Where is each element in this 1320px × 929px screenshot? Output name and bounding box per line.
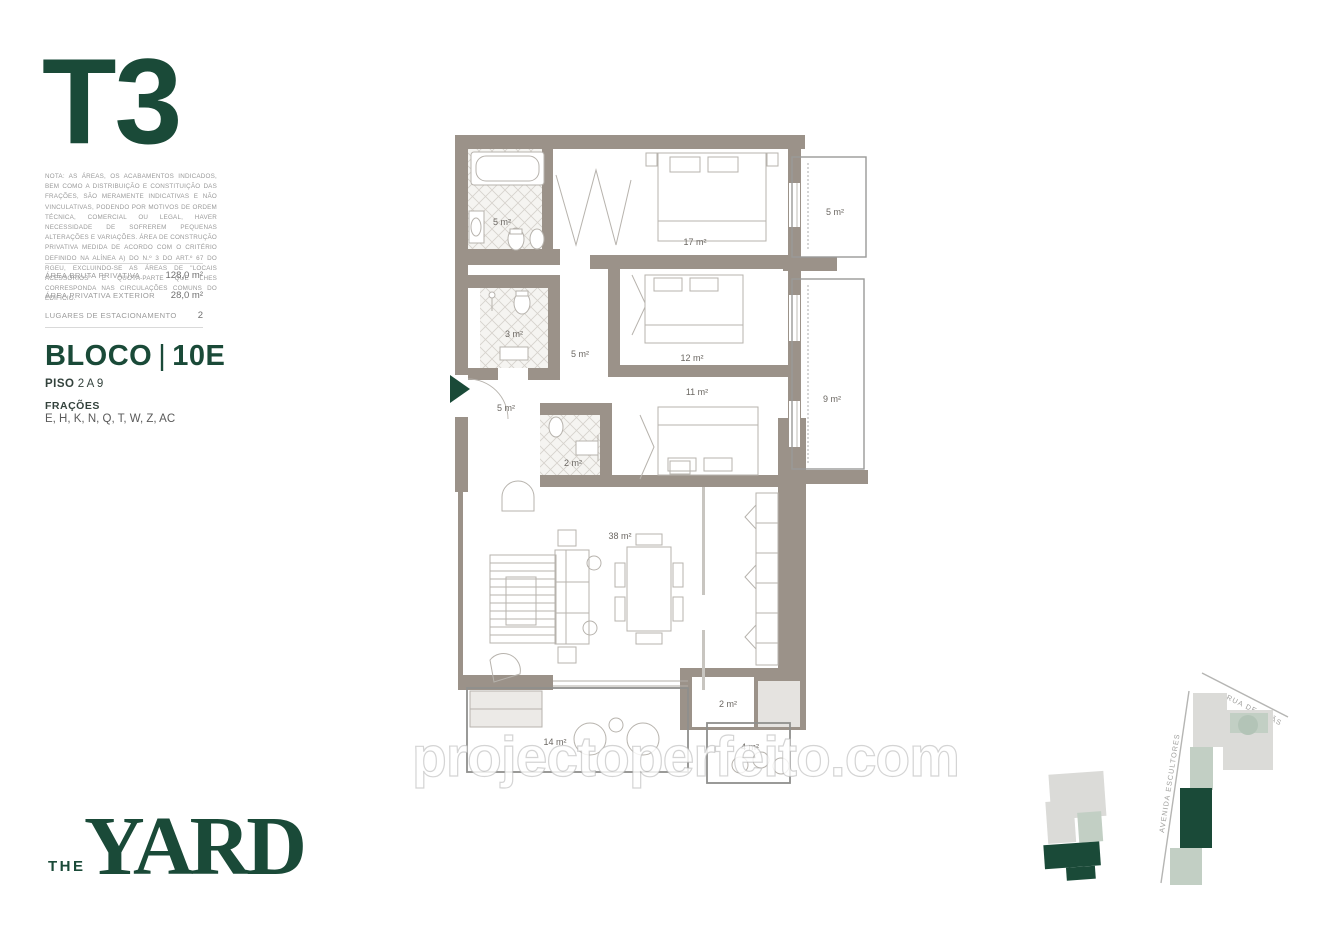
area-row-parking: LUGARES DE ESTACIONAMENTO 2 xyxy=(45,310,203,321)
block-number: 10E xyxy=(172,340,225,372)
site-map: RUA DE CHÃS AVENIDA ESCULTORES xyxy=(1030,655,1315,925)
unit-type-title: T3 xyxy=(42,40,180,162)
living-furniture xyxy=(490,481,683,682)
area-label: ÁREA PRIVATIVA EXTERIOR xyxy=(45,291,155,300)
bedroom-3-furniture xyxy=(640,407,758,479)
area-summary-table: ÁREA BRUTA PRIVATIVA 128,0 m² ÁREA PRIVA… xyxy=(45,270,203,330)
block-title: BLOCO|10E xyxy=(45,340,225,373)
storage-closet xyxy=(758,681,800,727)
entrance-arrow-icon xyxy=(450,375,470,403)
area-value: 2 xyxy=(198,310,203,321)
sliding-door xyxy=(553,681,688,686)
entrance-door-arc xyxy=(468,379,508,419)
area-label: LUGARES DE ESTACIONAMENTO xyxy=(45,311,177,320)
site-map-left-cluster xyxy=(1038,771,1110,882)
room-label-bedroom-1: 17 m² xyxy=(683,237,706,247)
room-label-bedroom-2: 12 m² xyxy=(680,353,703,363)
area-value: 128,0 m² xyxy=(166,270,204,281)
divider xyxy=(45,327,203,328)
divider xyxy=(45,263,203,264)
brand-logo: THE YARD xyxy=(46,806,306,916)
fractions-value: E, H, K, N, Q, T, W, Z, AC xyxy=(45,413,175,425)
logo-yard: YARD xyxy=(84,798,303,895)
floor-plan-sheet: { "unit": { "type_label": "T3" }, "discl… xyxy=(0,0,1320,929)
area-label: ÁREA BRUTA PRIVATIVA xyxy=(45,271,140,280)
area-value: 28,0 m² xyxy=(171,290,203,301)
room-label-balcony-1: 5 m² xyxy=(826,207,844,217)
room-label-bathroom: 5 m² xyxy=(493,217,511,227)
floor-value: 2 A 9 xyxy=(78,378,104,390)
fractions-label: FRAÇÕES xyxy=(45,400,100,412)
room-label-shower-room: 3 m² xyxy=(505,329,523,339)
area-row-exterior: ÁREA PRIVATIVA EXTERIOR 28,0 m² xyxy=(45,290,203,301)
logo-the: THE xyxy=(48,858,86,875)
kitchen-counter xyxy=(745,493,778,665)
room-label-laundry: 2 m² xyxy=(719,699,737,709)
windows xyxy=(789,183,800,447)
area-row-bruta: ÁREA BRUTA PRIVATIVA 128,0 m² xyxy=(45,270,203,281)
block-separator: | xyxy=(158,340,166,372)
site-map-right-cluster xyxy=(1170,693,1273,885)
street-label-avenida-escultores: AVENIDA ESCULTORES xyxy=(1157,733,1182,834)
block-label: BLOCO xyxy=(45,340,152,372)
bedroom-1-furniture xyxy=(556,153,778,245)
watermark: projectoperfeito.com xyxy=(412,724,918,790)
kitchen-partition xyxy=(702,487,705,690)
room-label-hall: 5 m² xyxy=(571,349,589,359)
floor-range: PISO 2 A 9 xyxy=(45,378,103,390)
room-label-living: 38 m² xyxy=(608,531,631,541)
room-label-bedroom-3: 11 m² xyxy=(686,387,708,397)
room-label-wc: 2 m² xyxy=(564,458,582,468)
bedroom-2-furniture xyxy=(632,275,743,343)
room-label-entry-hall: 5 m² xyxy=(497,403,515,413)
room-label-balcony-2: 9 m² xyxy=(823,394,841,404)
floor-plan: 5 m² 17 m² 5 m² 3 m² 5 m² 12 m² 11 m² 9 … xyxy=(440,125,900,795)
floor-label: PISO xyxy=(45,378,74,390)
